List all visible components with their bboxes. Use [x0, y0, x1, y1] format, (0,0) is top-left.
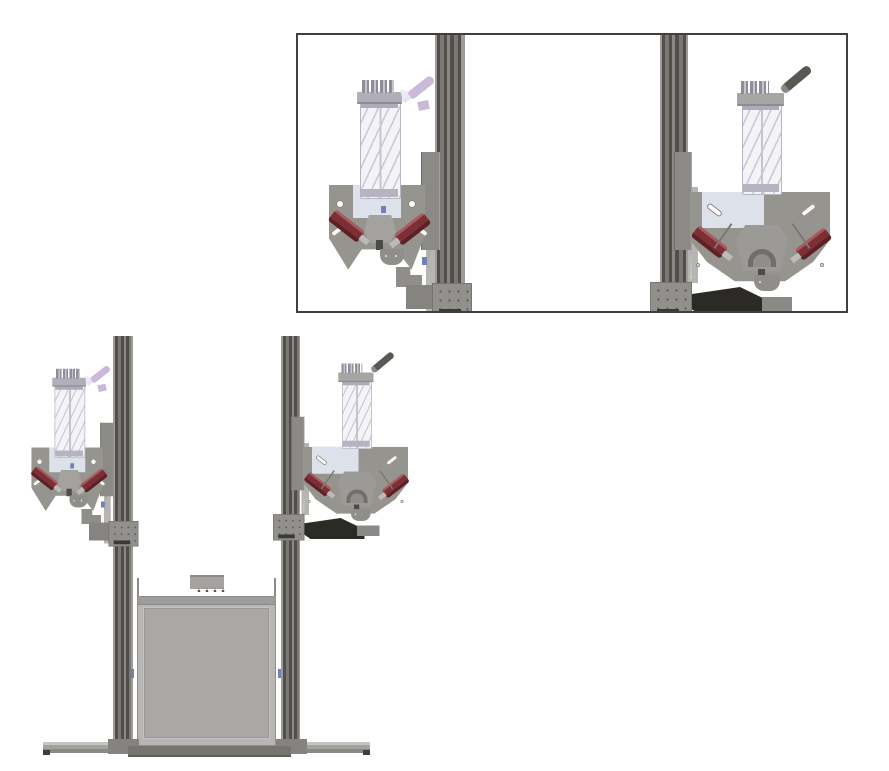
l-bracket — [396, 267, 422, 287]
sensor-bit — [422, 257, 427, 265]
rail-carriage — [650, 282, 692, 313]
collector-scoop — [692, 287, 772, 313]
screw-dot — [308, 500, 311, 503]
printhead-right — [273, 329, 423, 547]
cartridge-cap — [357, 92, 402, 104]
chamber-door-panel — [143, 607, 270, 739]
cartridge-pillars — [56, 369, 80, 379]
label-chip — [439, 309, 461, 313]
material-cartridge — [55, 385, 86, 459]
nozzle-mechanism — [364, 215, 396, 243]
chamber-top-rail — [138, 597, 275, 605]
chamber-latch-right — [278, 669, 281, 678]
syringe-cube — [97, 384, 106, 392]
cartridge-cap — [52, 378, 86, 387]
screw-dot — [73, 499, 76, 502]
plate-hole — [37, 459, 43, 465]
material-cartridge — [742, 103, 782, 195]
chamber-latch-left — [131, 669, 134, 678]
mechanism-arch — [347, 490, 368, 504]
screw-dot — [401, 500, 404, 503]
mech-tab — [380, 249, 404, 265]
screw-dot — [394, 254, 398, 258]
printhead-left — [26, 335, 176, 553]
plate-hole — [91, 459, 97, 465]
screw-dot — [354, 513, 357, 516]
screw-dot — [80, 499, 83, 502]
cartridge-band — [743, 184, 779, 192]
mech-tab — [70, 496, 88, 508]
rail-carriage — [432, 283, 472, 313]
build-chamber — [137, 596, 276, 746]
sensor-bit — [381, 206, 386, 213]
cartridge-handle — [779, 64, 812, 94]
printhead-left-detail — [322, 35, 522, 313]
screw-dot — [384, 254, 388, 258]
cad-figure — [0, 0, 889, 771]
plate-hole — [408, 200, 416, 208]
sensor-bit — [70, 463, 74, 468]
label-chip — [657, 309, 679, 313]
cartridge-band — [55, 451, 83, 457]
screw-dot — [696, 263, 700, 267]
chamber-top-bracket — [190, 575, 224, 589]
cartridge-pillars — [341, 364, 362, 374]
syringe-cube — [417, 100, 430, 111]
syringe — [89, 365, 111, 384]
plate-hole — [336, 200, 344, 208]
sensor-bit — [101, 502, 105, 508]
base-strip — [128, 746, 291, 757]
screw-dot — [758, 280, 762, 284]
cartridge-handle — [370, 351, 395, 374]
carriage-bracket — [674, 152, 692, 250]
label-chip — [278, 535, 295, 539]
bottom-bracket — [406, 285, 434, 309]
mech-tab — [754, 275, 780, 291]
bottom-bracket — [89, 523, 110, 541]
syringe — [406, 75, 435, 101]
foot-end-cap — [43, 750, 50, 755]
bracket-screw-dots — [194, 588, 226, 592]
printhead-right-detail — [650, 35, 848, 313]
detail-inset — [296, 33, 848, 313]
cartridge-band — [361, 189, 398, 197]
rail-carriage — [273, 514, 305, 540]
cartridge-pillars — [362, 80, 394, 93]
material-cartridge — [342, 380, 372, 449]
scoop-tab — [357, 526, 380, 537]
mech-tab — [351, 509, 371, 521]
cartridge-band — [343, 441, 370, 447]
cartridge-pillars — [741, 81, 769, 94]
foot-end-cap — [363, 750, 370, 755]
cartridge-cap — [338, 373, 373, 383]
cartridge-cap — [737, 93, 784, 106]
screw-dot — [820, 263, 824, 267]
rail-carriage — [109, 521, 139, 547]
label-chip — [114, 541, 131, 545]
carriage-bracket — [291, 417, 305, 491]
chamber-corner-post — [274, 578, 276, 596]
collector-scoop — [305, 518, 365, 539]
chamber-corner-post — [137, 578, 139, 596]
scoop-tab — [762, 297, 792, 311]
material-cartridge — [360, 101, 401, 199]
